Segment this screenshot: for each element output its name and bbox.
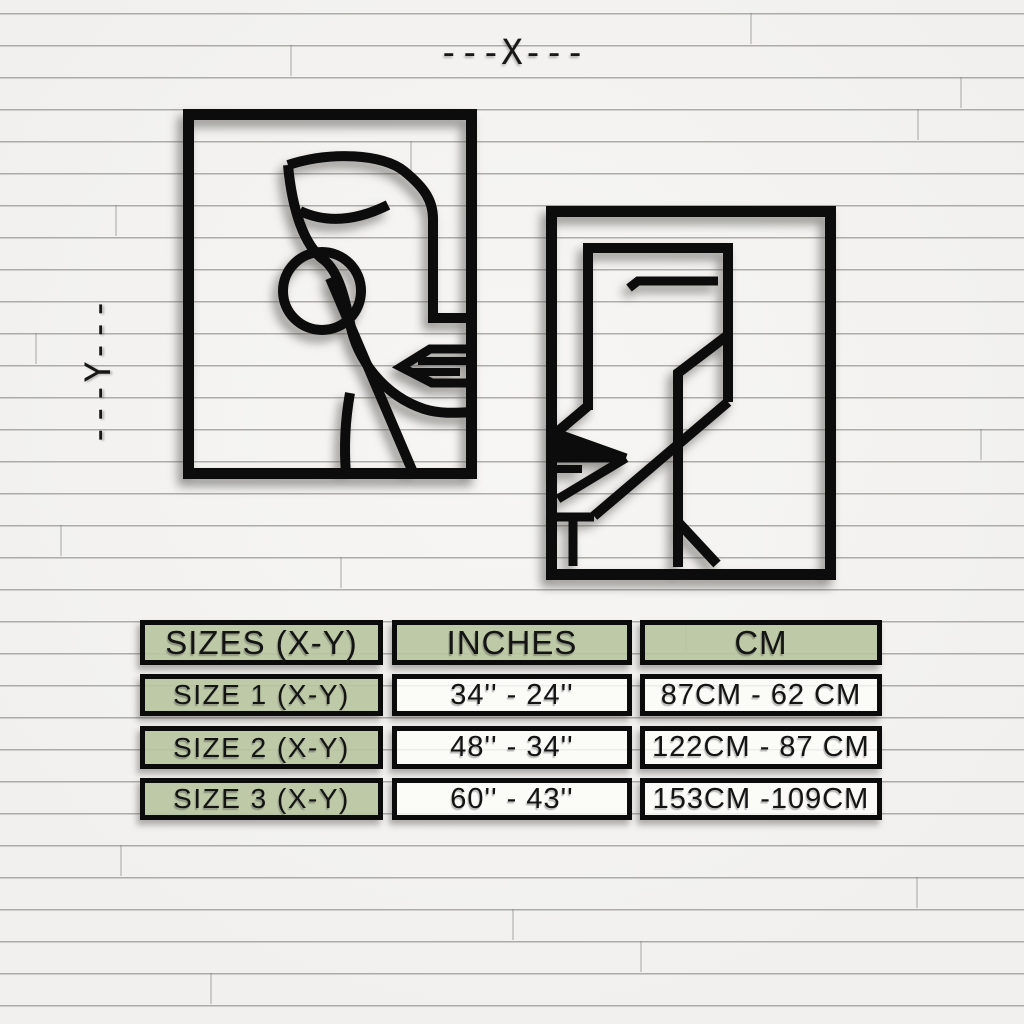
table-cell-size3-cm: 153CM -109CM — [640, 778, 882, 820]
table-cell-size2-inches: 48'' - 34'' — [392, 726, 632, 769]
brick-joint — [917, 109, 919, 140]
height-dimension-label: ---Y--- — [79, 285, 119, 459]
hair-tail-line — [556, 406, 588, 433]
hair-outline — [588, 248, 728, 410]
brick-joint — [340, 557, 342, 588]
table-cell-size1-label: SIZE 1 (X-Y) — [140, 674, 383, 716]
table-header-inches: INCHES — [392, 620, 632, 665]
brick-joint — [916, 877, 918, 908]
brick-joint — [750, 13, 752, 44]
brick-joint — [512, 909, 514, 940]
table-header-cm: CM — [640, 620, 882, 665]
eyebrow-line — [629, 281, 718, 288]
table-cell-size1-inches: 34'' - 24'' — [392, 674, 632, 716]
brick-joint — [35, 333, 37, 364]
artwork-right-panel — [546, 206, 836, 580]
table-cell-size2-cm: 122CM - 87 CM — [640, 726, 882, 769]
brick-joint — [120, 845, 122, 876]
brick-joint — [115, 205, 117, 236]
artwork-left-panel — [183, 109, 477, 479]
product-size-guide-image: { "dimension_labels": { "x": "---X---", … — [0, 0, 1024, 1024]
neck-line — [345, 393, 350, 474]
brick-joint — [210, 973, 212, 1004]
width-dimension-label: ---X--- — [400, 33, 624, 73]
lips-arrow — [401, 349, 472, 383]
face-profile-line — [288, 156, 472, 318]
table-header-sizes: SIZES (X-Y) — [140, 620, 383, 665]
brick-joint — [290, 45, 292, 76]
brick-joint — [60, 525, 62, 556]
table-cell-size2-label: SIZE 2 (X-Y) — [140, 726, 383, 769]
brick-joint — [960, 77, 962, 108]
nostril-line — [678, 522, 717, 564]
table-cell-size1-cm: 87CM - 62 CM — [640, 674, 882, 716]
eyebrow-line — [300, 205, 388, 219]
table-cell-size3-inches: 60'' - 43'' — [392, 778, 632, 820]
brick-wall-background — [0, 0, 1024, 1024]
brick-joint — [640, 941, 642, 972]
brick-joint — [980, 429, 982, 460]
table-cell-size3-label: SIZE 3 (X-Y) — [140, 778, 383, 820]
